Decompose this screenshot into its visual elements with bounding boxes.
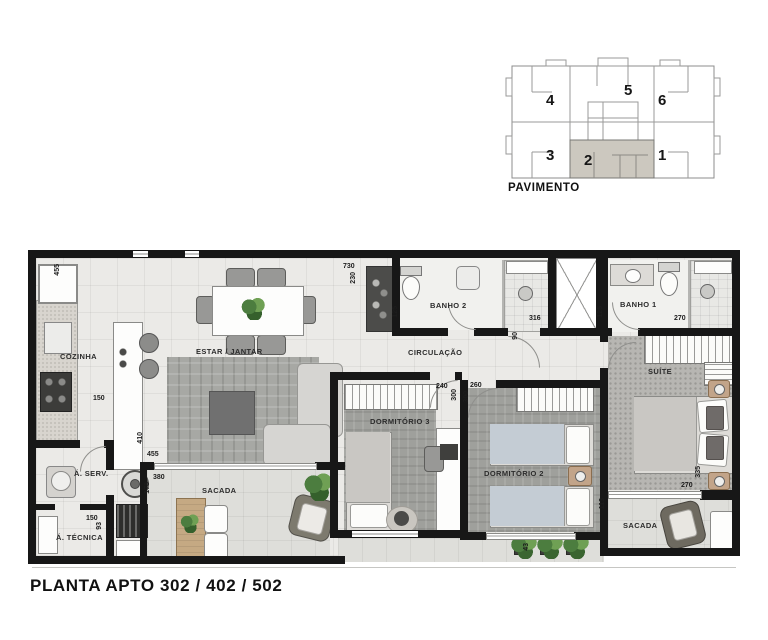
kitchen-sink: [44, 322, 72, 354]
wall-dorm3-top-stub: [455, 372, 462, 380]
coffee-table: [209, 391, 255, 435]
banho1-vanity: [610, 264, 654, 286]
floor-plan: COZINHA ESTAR / JANTAR CIRCULAÇÃO BANHO …: [0, 0, 768, 640]
wall-bottom-left: [28, 556, 345, 564]
banho1-shelf: [694, 261, 732, 274]
dorm3-pillow: [350, 504, 388, 528]
wall-shaft-right: [596, 258, 608, 336]
sofa-chaise: [263, 424, 331, 466]
dorm2-duvet: [490, 424, 565, 464]
island-sink-taps: [118, 346, 128, 370]
dorm3-window: [352, 531, 418, 537]
dim-label: 410: [137, 432, 144, 444]
laundry-tank-basin: [51, 471, 71, 491]
banho2-shower-divider: [502, 260, 504, 330]
dim-label: 455: [54, 264, 61, 276]
dim-label: 300: [463, 391, 470, 403]
suite-duvet: [634, 397, 697, 471]
wall-kitchen-service-1: [28, 440, 80, 448]
slab-outline: [32, 567, 736, 568]
dorm2-pillow: [566, 426, 590, 464]
balcony-table-plant: [180, 514, 199, 533]
dorm3-monitor: [440, 444, 458, 460]
banho1-toilet: [658, 262, 680, 298]
dim-label: 113: [599, 498, 606, 509]
banho2-washbasin: [456, 266, 480, 290]
wall-circulation-4: [638, 328, 740, 336]
planter-box: [540, 544, 558, 555]
estar-sliding-door: [154, 463, 317, 470]
dim-label: 93: [96, 522, 103, 530]
room-label-circulacao: CIRCULAÇÃO: [408, 348, 462, 357]
wall-banho2-left: [392, 250, 400, 336]
wall-aserv-atecnica-2: [80, 504, 112, 510]
plan-title: PLANTA APTO 302 / 402 / 502: [30, 576, 282, 596]
wall-bottom-right: [604, 548, 740, 556]
dorm3-wardrobe: [344, 384, 438, 410]
wall-dorm2-bottom-left: [462, 532, 486, 540]
dim-label: 260: [470, 382, 482, 389]
balcony-plant: [303, 473, 333, 501]
wall-dorm2-top: [496, 380, 606, 388]
shaft-hatch: [556, 258, 598, 332]
dim-label: 178: [144, 482, 151, 494]
room-label-banho1: BANHO 1: [620, 300, 657, 309]
window: [185, 251, 199, 257]
dorm2-nightstand: [568, 466, 592, 486]
room-label-sacada-suite: SACADA: [623, 521, 657, 530]
banho2-shelf: [506, 261, 548, 274]
wall-suite-left-lower: [600, 368, 608, 498]
room-label-area-tecnica: Á. TÉCNICA: [56, 533, 103, 542]
dim-label: 90: [512, 332, 519, 340]
banho2-toilet: [400, 266, 422, 302]
dorm2-duvet: [490, 486, 565, 526]
keyplan-title: PAVIMENTO: [508, 182, 580, 194]
dim-label: 43: [523, 543, 530, 551]
wall-suite-sacada: [700, 490, 740, 500]
dim-label: 240: [436, 383, 448, 390]
room-label-banho2: BANHO 2: [430, 301, 467, 310]
banho1-showerhead: [700, 284, 715, 299]
floor-plan-page: 4 5 6 3 2 1 PAVIMENTO: [0, 0, 768, 640]
wall-aserv-atecnica-1: [28, 504, 55, 510]
dim-label: 455: [147, 451, 159, 458]
banho2-showerhead: [518, 286, 533, 301]
wall-circulation-1: [392, 328, 448, 336]
room-label-cozinha: COZINHA: [60, 352, 97, 361]
wall-circulation-2: [474, 328, 508, 336]
dorm3-pouf: [394, 511, 409, 526]
suite-nightstand: [708, 380, 730, 398]
table-plant: [240, 298, 266, 320]
room-label-suite: SUÍTE: [648, 367, 672, 376]
banho1-shower-divider: [688, 260, 690, 330]
dorm3-duvet: [346, 432, 390, 503]
dim-label: 125: [597, 306, 604, 318]
dim-label: 270: [674, 315, 686, 322]
dim-label: 730: [343, 263, 355, 270]
dorm2-pillow: [566, 488, 590, 526]
island-stool: [139, 359, 159, 379]
dorm2-sliding-door: [486, 533, 576, 540]
technical-equipment: [38, 516, 58, 554]
wall-dorm3-left: [330, 372, 338, 538]
planter-box: [566, 544, 584, 555]
room-label-dormitorio2: DORMITÓRIO 2: [484, 469, 544, 478]
dim-label: 335: [695, 466, 702, 478]
room-label-dormitorio3: DORMITÓRIO 3: [370, 417, 430, 426]
dim-label: 150: [93, 395, 105, 402]
balcony-chair: [204, 505, 228, 533]
dim-label: 300: [451, 389, 458, 401]
dim-label: 316: [529, 315, 541, 322]
suite-accent-pillow: [706, 406, 724, 430]
island-stool: [139, 333, 159, 353]
dining-chair: [226, 268, 255, 288]
wall-dorm3-top: [330, 372, 430, 380]
wall-right: [732, 250, 740, 556]
wall-service-right-upper: [106, 440, 114, 470]
wall-dorm-divider: [460, 380, 468, 540]
suite-wardrobe: [644, 334, 736, 364]
suite-accent-pillow: [706, 436, 724, 460]
wall-left: [28, 250, 36, 564]
dim-label: 270: [681, 482, 693, 489]
wall-estar-sacada-right: [315, 462, 345, 470]
wall-shaft-left: [548, 258, 556, 336]
wall-laundry-right: [140, 462, 147, 564]
room-label-sacada-estar: SACADA: [202, 486, 236, 495]
dim-label: 380: [153, 474, 165, 481]
dim-label: 125: [392, 306, 399, 318]
suite-nightstand: [708, 472, 730, 490]
dim-label: 230: [350, 272, 357, 284]
stove: [40, 372, 72, 412]
dorm2-wardrobe: [516, 386, 594, 412]
wall-suite-left-upper: [600, 332, 608, 342]
suite-sliding-door: [608, 491, 702, 499]
room-label-estar-jantar: ESTAR / JANTAR: [196, 347, 263, 356]
dining-chair: [257, 268, 286, 288]
room-label-area-servico: Á. SERV.: [74, 469, 108, 478]
window: [133, 251, 148, 257]
decor-cabinet: [366, 266, 395, 332]
